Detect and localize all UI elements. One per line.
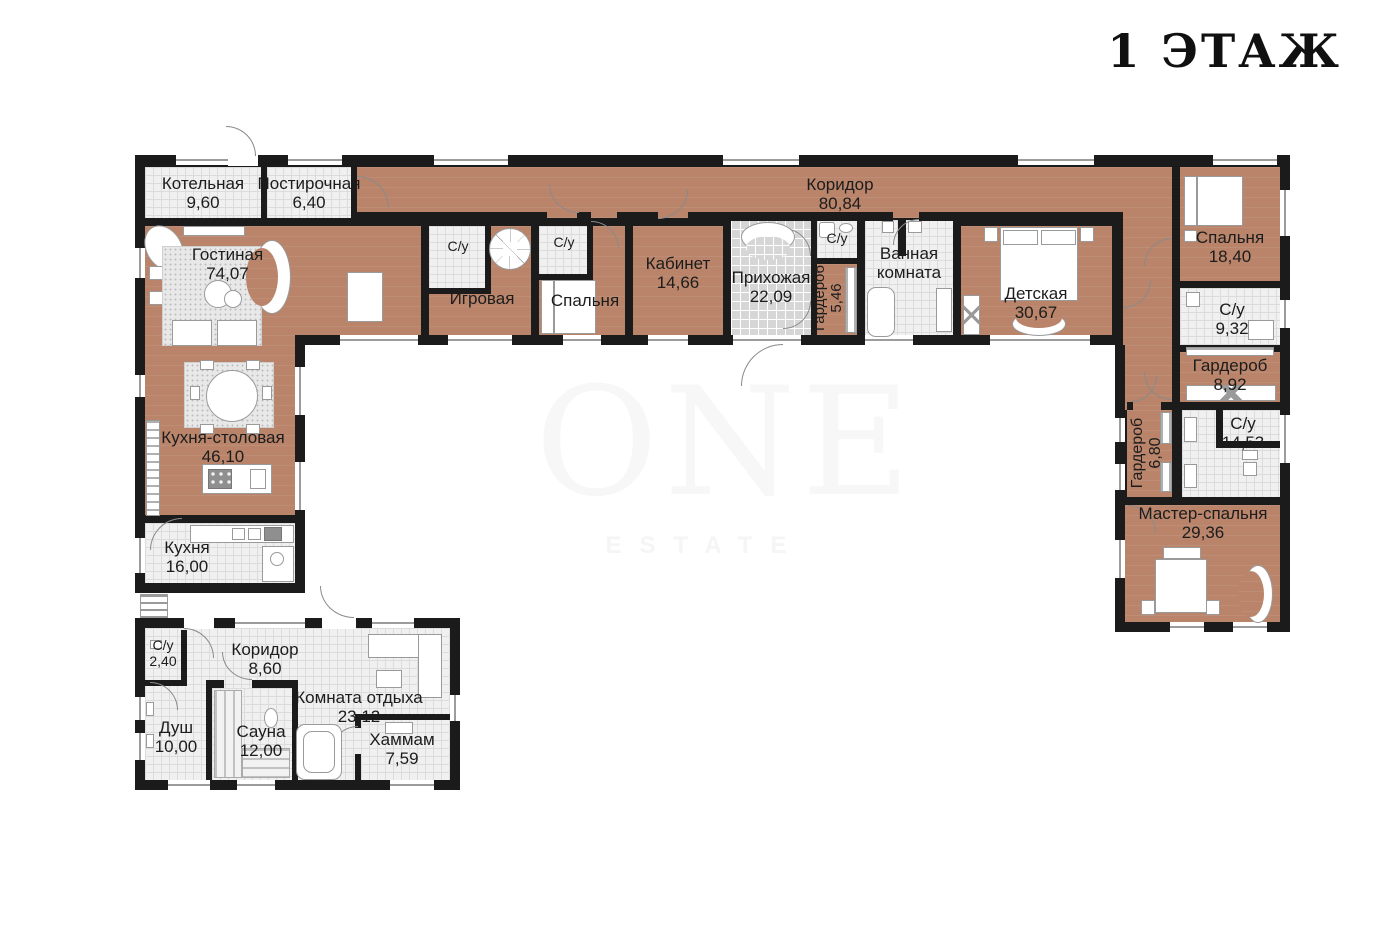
wall [531, 212, 539, 344]
island-sink [250, 469, 266, 489]
wall [145, 218, 351, 226]
label-sauna: Сауна 12,00 [232, 720, 290, 762]
window [448, 335, 512, 345]
sink-cabinet [1184, 417, 1197, 442]
window [1170, 622, 1204, 632]
page-title: 1 ЭТАЖ [1107, 24, 1342, 78]
room-area: 16,00 [166, 557, 209, 576]
bed [1155, 559, 1207, 613]
room-name: Мастер-спальня [1138, 504, 1267, 523]
room-area: 9,32 [1215, 319, 1248, 338]
label-prihozhaya: Прихожая 22,09 [728, 266, 814, 308]
room-koridor-top [357, 167, 1123, 218]
room-name: Спальня [551, 291, 619, 310]
label-spalnya: Спальня [545, 290, 625, 312]
window [1115, 418, 1125, 442]
label-su-240: С/у 2,40 [142, 636, 184, 672]
room-area: 22,09 [750, 287, 793, 306]
room-area: 8,60 [248, 659, 281, 678]
room-area: 46,10 [202, 447, 245, 466]
window [295, 367, 305, 415]
side-table [347, 272, 383, 322]
room-name: Комната отдыха [295, 688, 423, 707]
wall [1172, 155, 1180, 238]
label-garderob-680: Гардероб 6,80 [1125, 401, 1169, 505]
tv-console [183, 226, 245, 236]
room-name: Коридор [231, 640, 298, 659]
armchair [217, 320, 257, 346]
dining-table [206, 370, 258, 422]
room-name: Детская [1005, 284, 1068, 303]
window [135, 538, 145, 573]
room-name: С/у [827, 231, 848, 247]
room-area: 6,80 [1147, 437, 1165, 468]
wall [355, 754, 361, 780]
chaise-cut [1238, 571, 1264, 617]
wall [1112, 212, 1123, 282]
room-area: 74,07 [206, 264, 249, 283]
window [450, 695, 460, 721]
bidet [908, 221, 922, 233]
window [176, 155, 234, 165]
room-area: 10,00 [155, 737, 198, 756]
window [1233, 622, 1267, 632]
wall [206, 682, 212, 780]
label-garderob-892: Гардероб 8,92 [1183, 355, 1277, 395]
window [237, 780, 275, 790]
bed-pillow [1041, 230, 1076, 245]
window [340, 335, 418, 345]
window [1018, 155, 1094, 165]
room-name: Хаммам [369, 730, 434, 749]
headboard-shelf [1163, 547, 1201, 559]
label-su-igrovaya: С/у [438, 238, 478, 256]
room-area: 12,00 [240, 741, 283, 760]
room-name: Гардероб [1193, 356, 1268, 375]
window [390, 780, 434, 790]
room-area: 29,36 [1182, 523, 1225, 542]
window [733, 335, 801, 345]
room-name: Гостиная [192, 245, 263, 264]
room-name: Ванная комната [866, 244, 952, 282]
room-name: Игровая [450, 289, 515, 308]
toilet [1243, 462, 1257, 476]
window [723, 155, 799, 165]
hot-tub-inner [303, 731, 335, 773]
window [1280, 300, 1290, 328]
wall [953, 212, 961, 344]
room-name: Душ [159, 718, 193, 737]
wall [1172, 410, 1182, 497]
wall [1112, 308, 1123, 344]
room-area: 18,40 [1209, 247, 1252, 266]
wall [617, 212, 658, 221]
wall [1172, 288, 1180, 368]
room-name: С/у [448, 239, 469, 255]
room-name: Кухня [164, 538, 210, 557]
vanity-cabinet [936, 288, 952, 332]
wall [1180, 281, 1280, 288]
room-area: 5,46 [829, 283, 846, 312]
sink-cabinet [1184, 464, 1197, 488]
door-gap [228, 155, 258, 166]
window [135, 733, 145, 760]
label-koridor: Коридор 80,84 [790, 172, 890, 216]
label-dush: Душ 10,00 [148, 716, 204, 758]
window [295, 462, 305, 510]
room-name: Сауна [236, 722, 285, 741]
label-spalnya2: Спальня 18,40 [1185, 226, 1275, 268]
room-name: Прихожая [732, 268, 811, 287]
door-arc [226, 126, 256, 156]
label-master: Мастер-спальня 29,36 [1128, 502, 1278, 544]
room-name: Коридор [806, 175, 873, 194]
stove [264, 527, 282, 541]
nightstand [1141, 600, 1155, 615]
wall [577, 212, 591, 221]
window [1115, 464, 1125, 490]
door-arc [741, 344, 783, 386]
window [1280, 415, 1290, 463]
room-name: Котельная [162, 174, 244, 193]
watermark: ONE ESTATE [535, 368, 875, 560]
window [168, 780, 210, 790]
label-vannaya: Ванная комната [866, 240, 952, 286]
window [288, 155, 342, 165]
wall [206, 680, 224, 688]
window [1280, 190, 1290, 236]
window [990, 335, 1090, 345]
window [648, 335, 688, 345]
sink [270, 552, 284, 566]
window [135, 248, 145, 278]
chair [200, 360, 214, 370]
label-garderob-hall: Гардероб 5,46 [807, 248, 851, 348]
label-detskaya: Детская 30,67 [995, 282, 1077, 324]
room-area: 23,12 [338, 707, 381, 726]
window [135, 375, 145, 397]
room-area: 9,60 [186, 193, 219, 212]
room-name: Гардероб [1129, 418, 1147, 488]
label-kotelnaya: Котельная 9,60 [148, 172, 258, 214]
label-koridor-sauna: Коридор 8,60 [226, 638, 304, 680]
wall [357, 212, 547, 221]
wardrobe [963, 295, 980, 335]
nightstand [1080, 227, 1094, 242]
coffee-table [224, 290, 242, 308]
bathtub [867, 287, 895, 337]
label-gostinaya: Гостиная 74,07 [175, 243, 280, 285]
door-arc [320, 586, 354, 618]
room-name: Гардероб [812, 265, 829, 331]
wall [182, 515, 295, 523]
label-su-932: С/у 9,32 [1203, 298, 1261, 340]
room-area: 30,67 [1015, 303, 1058, 322]
wall [857, 212, 865, 344]
window [434, 155, 508, 165]
room-area: 80,84 [819, 194, 862, 213]
watermark-estate: ESTATE [535, 532, 875, 560]
shower-head [146, 702, 154, 716]
label-igrovaya: Игровая [440, 288, 524, 310]
bed-pillows [1184, 176, 1197, 226]
wall [1172, 264, 1180, 288]
label-kuhnya: Кухня 16,00 [150, 536, 224, 578]
watermark-one: ONE [535, 368, 875, 518]
label-su-spalnya: С/у [544, 234, 584, 252]
wall [1161, 402, 1280, 410]
window [135, 697, 145, 720]
exterior-steps [140, 594, 168, 618]
window [372, 618, 414, 628]
bed-pillow [1003, 230, 1038, 245]
room-name: С/у [153, 638, 174, 654]
label-su-hall: С/у [818, 230, 856, 248]
label-su-1453: С/у 14,53 [1212, 412, 1274, 454]
window [1213, 155, 1277, 165]
window [563, 335, 601, 345]
label-postirochnaya: Постирочная 6,40 [259, 172, 359, 214]
bed [1197, 176, 1243, 226]
appliance [248, 528, 261, 540]
room-name: Кабинет [646, 254, 711, 273]
room-name: Постирочная [258, 174, 361, 193]
label-hammam: Хаммам 7,59 [366, 728, 438, 770]
armchair [172, 320, 212, 346]
room-area: 7,59 [385, 749, 418, 768]
wall [421, 212, 429, 344]
toilet [1186, 292, 1200, 307]
room-name: С/у [1219, 300, 1245, 319]
room-name: С/у [554, 235, 575, 251]
wall [625, 212, 633, 344]
label-kabinet: Кабинет 14,66 [634, 252, 722, 294]
label-kuhnya-stolovaya: Кухня-столовая 46,10 [152, 426, 294, 468]
room-su-igrovaya [429, 226, 485, 290]
room-name: Спальня [1196, 228, 1264, 247]
nightstand [984, 227, 998, 242]
room-area: 14,53 [1222, 433, 1265, 452]
door-gap [322, 618, 356, 629]
spiral-stair [489, 228, 531, 270]
wall [919, 212, 1112, 221]
chair [262, 386, 272, 400]
room-area: 2,40 [149, 654, 176, 670]
bench-cut [746, 236, 790, 260]
floor-plan-page: ONE ESTATE [0, 0, 1400, 933]
window [1115, 540, 1125, 578]
label-komnata-otdyha: Комната отдыха 23,12 [290, 686, 428, 728]
room-name: С/у [1230, 414, 1256, 433]
window [235, 618, 305, 628]
chair [190, 386, 200, 400]
cooktop [208, 469, 232, 489]
room-area: 6,40 [292, 193, 325, 212]
room-area: 14,66 [657, 273, 700, 292]
room-area: 8,92 [1213, 375, 1246, 394]
chair [246, 360, 260, 370]
room-name: Кухня-столовая [161, 428, 284, 447]
appliance [232, 528, 245, 540]
nightstand [1206, 600, 1220, 615]
toilet [882, 221, 894, 233]
